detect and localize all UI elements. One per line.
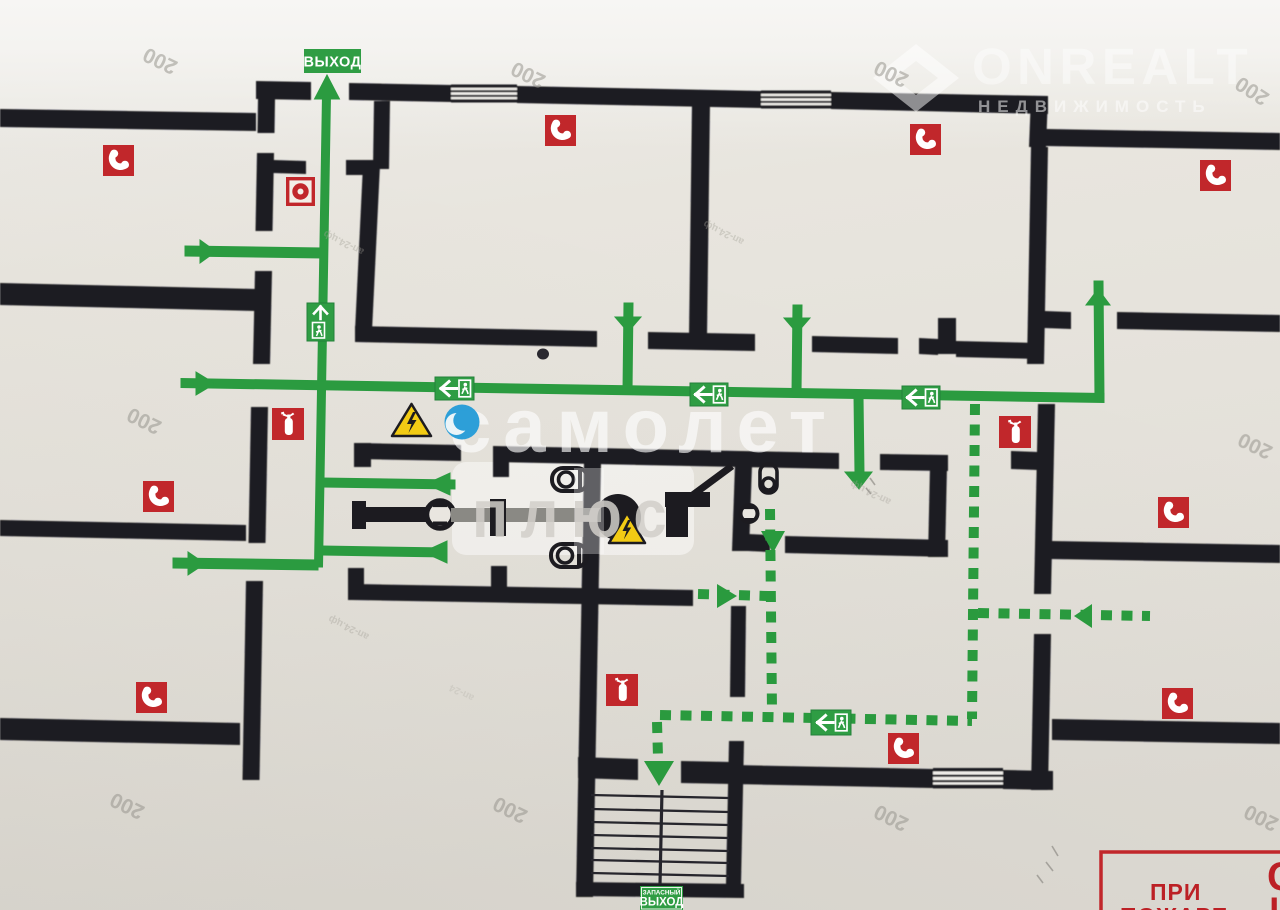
svg-text:НЕДВИЖИМОСТЬ: НЕДВИЖИМОСТЬ xyxy=(978,97,1212,116)
svg-text:самолет: самолет xyxy=(449,384,837,469)
svg-text:И: И xyxy=(1269,890,1280,910)
svg-text:ONREALT: ONREALT xyxy=(972,38,1253,95)
svg-text:ПОЖАРЕ: ПОЖАРЕ xyxy=(1120,903,1228,910)
svg-text:ВЫХОД: ВЫХОД xyxy=(304,55,362,71)
svg-text:ВЫХОД: ВЫХОД xyxy=(640,897,684,909)
svg-text:ЗАПАСНЫЙ: ЗАПАСНЫЙ xyxy=(643,888,681,897)
svg-text:плюс: плюс xyxy=(472,475,679,551)
svg-text:ПРИ: ПРИ xyxy=(1150,879,1201,905)
